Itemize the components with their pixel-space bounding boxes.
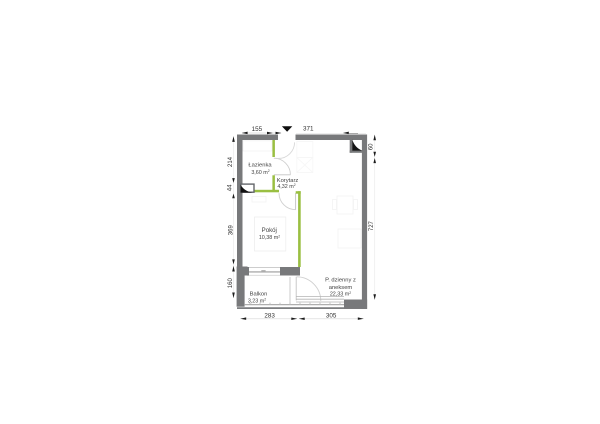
svg-text:44: 44 <box>228 184 234 191</box>
svg-text:3,23 m2: 3,23 m2 <box>248 298 266 305</box>
svg-text:305: 305 <box>326 312 337 319</box>
svg-text:10,38 m2: 10,38 m2 <box>259 235 280 242</box>
svg-text:Balkon: Balkon <box>250 292 268 298</box>
svg-text:727: 727 <box>369 220 375 231</box>
svg-text:160: 160 <box>228 278 234 289</box>
svg-text:P. dzienny z: P. dzienny z <box>325 278 356 284</box>
svg-text:369: 369 <box>228 225 234 236</box>
svg-text:aneksem: aneksem <box>329 285 353 291</box>
svg-text:155: 155 <box>252 126 263 133</box>
svg-text:214: 214 <box>228 156 234 167</box>
svg-text:4,32 m2: 4,32 m2 <box>277 183 295 190</box>
svg-text:371: 371 <box>303 126 314 133</box>
svg-text:3,60 m2: 3,60 m2 <box>251 169 269 176</box>
svg-text:283: 283 <box>264 312 275 319</box>
svg-text:Pokój: Pokój <box>262 227 277 234</box>
svg-text:60: 60 <box>368 143 374 150</box>
svg-text:22,33 m2: 22,33 m2 <box>330 291 351 298</box>
svg-text:Łazienka: Łazienka <box>248 162 272 168</box>
